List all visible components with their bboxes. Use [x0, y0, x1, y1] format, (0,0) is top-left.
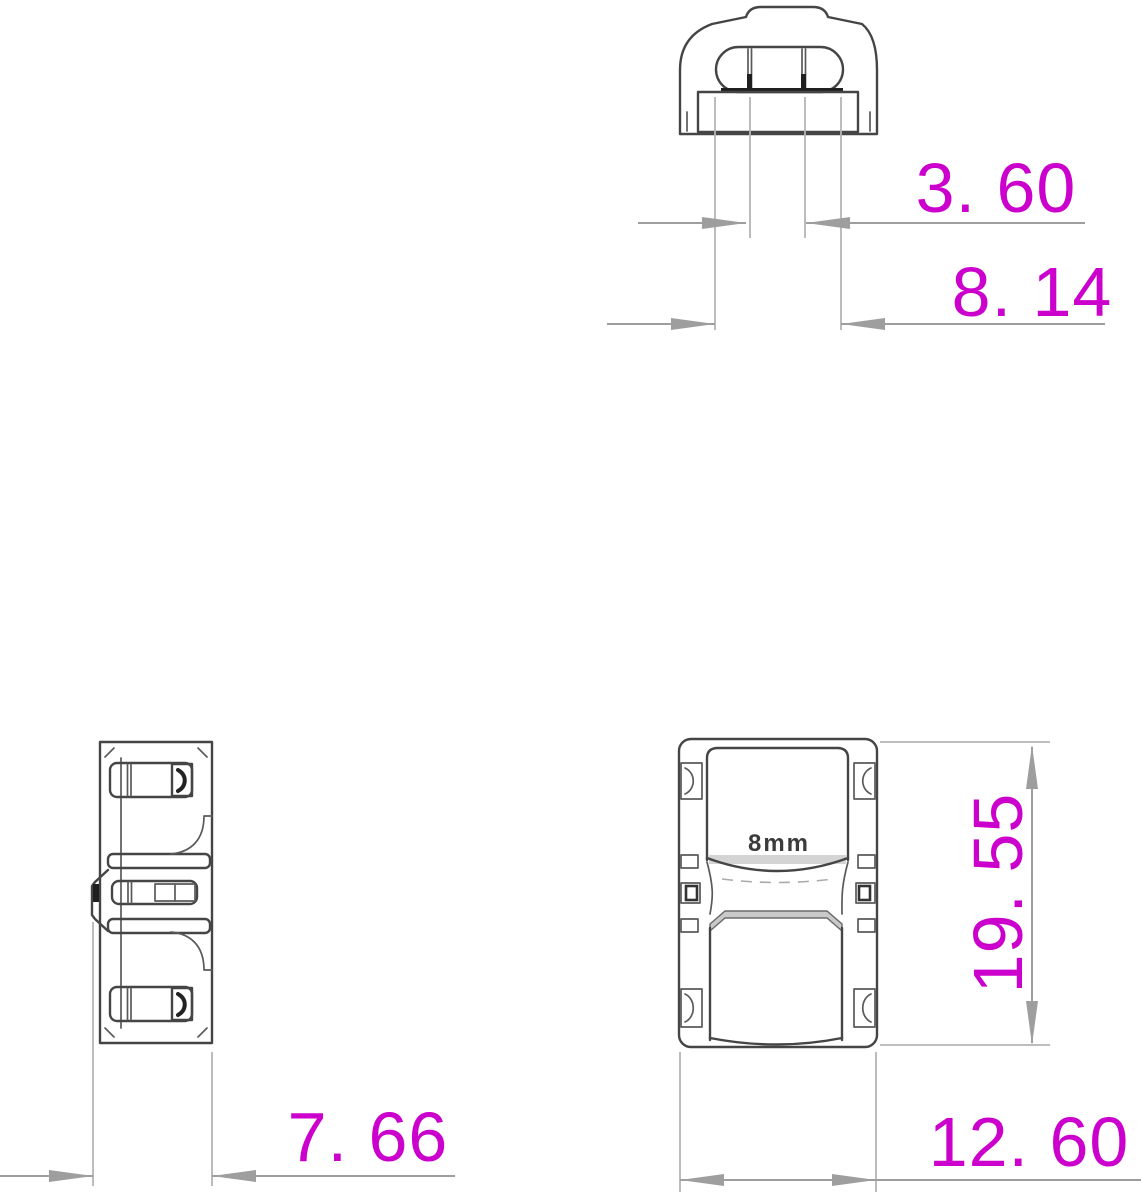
corner-tick: [105, 1028, 114, 1037]
side-view-middle-section: [92, 816, 212, 970]
relief-curve-upper: [171, 816, 212, 854]
contact-detail: [178, 770, 185, 791]
corner-tick: [198, 748, 207, 757]
relief-curve-lower: [171, 932, 212, 970]
dimension-body-height: 19. 55: [880, 742, 1050, 1045]
front-view-left-notches: [681, 763, 702, 1027]
arrowhead-right-icon: [832, 1174, 876, 1186]
dimension-label: 8. 14: [952, 253, 1113, 331]
waist-curve-left: [707, 862, 712, 914]
contact-detail: [178, 994, 185, 1015]
arrowhead-left-icon: [212, 1170, 256, 1182]
slot-end-cell: [172, 764, 192, 796]
arrowhead-right-icon: [49, 1170, 93, 1182]
arrowhead-right-icon: [702, 217, 746, 229]
notch: [681, 989, 702, 1027]
lower-rib: [108, 919, 210, 933]
cad-drawing-canvas: 3. 60 8. 14: [0, 0, 1141, 1200]
dimension-label: 12. 60: [929, 1103, 1130, 1181]
middle-slot-divider: [128, 882, 132, 903]
hidden-edge: [722, 879, 833, 883]
dimension-body-depth: 7. 66: [0, 922, 455, 1186]
dimension-slot-pitch: 3. 60: [638, 149, 1085, 229]
front-view-right-notches: [854, 763, 875, 1027]
slot-divider: [128, 764, 132, 796]
notch: [681, 763, 702, 799]
slot-divider: [128, 988, 132, 1020]
top-view-dome-outline: [680, 7, 877, 134]
notch-arc: [685, 994, 693, 1022]
front-view-lower-plate: [710, 911, 842, 1045]
notch-arc: [863, 994, 871, 1022]
waist-curve-right: [842, 862, 848, 914]
notch: [854, 763, 875, 799]
dimension-label: 7. 66: [288, 1098, 449, 1176]
arrowhead-down-icon: [1026, 1001, 1038, 1045]
arrowhead-left-icon: [680, 1174, 724, 1186]
notch-insert: [859, 886, 870, 900]
corner-tick: [105, 748, 114, 757]
notch: [681, 919, 698, 932]
dimension-body-width: 12. 60: [680, 1052, 1141, 1192]
upper-rib: [108, 854, 210, 868]
top-view-slot-stadium: [716, 47, 843, 92]
arrowhead-left-icon: [806, 217, 850, 229]
top-view-base-block: [698, 92, 858, 132]
notch: [681, 855, 698, 868]
notch: [858, 855, 875, 868]
dimension-label: 19. 55: [959, 793, 1037, 994]
notch-insert: [686, 886, 697, 900]
notch-arc: [685, 768, 693, 794]
corner-tick: [198, 1028, 207, 1037]
slot-end-cell: [172, 988, 192, 1020]
engineering-drawing: 3. 60 8. 14: [0, 0, 1141, 1200]
side-view-top-slot: [110, 763, 192, 797]
latch-tab-mark: [93, 884, 99, 902]
dimension-label: 3. 60: [916, 149, 1077, 227]
dimension-opening-width: 8. 14: [607, 253, 1112, 331]
arrowhead-up-icon: [1026, 745, 1038, 789]
notch: [854, 989, 875, 1027]
notch: [858, 919, 875, 932]
front-view-upper-plate: 8mm: [707, 748, 848, 883]
lower-plate-top-band: [710, 911, 842, 931]
size-marking-label: 8mm: [748, 830, 810, 857]
arrowhead-right-icon: [671, 318, 715, 330]
side-view: [92, 742, 212, 1043]
side-view-bottom-slot: [110, 987, 192, 1021]
lower-plate-sides: [710, 928, 842, 1040]
arrowhead-left-icon: [841, 318, 885, 330]
notch-arc: [863, 768, 871, 794]
top-view: [680, 7, 877, 134]
front-view: 8mm: [679, 739, 877, 1047]
lower-plate-bottom-curve: [710, 1038, 842, 1045]
